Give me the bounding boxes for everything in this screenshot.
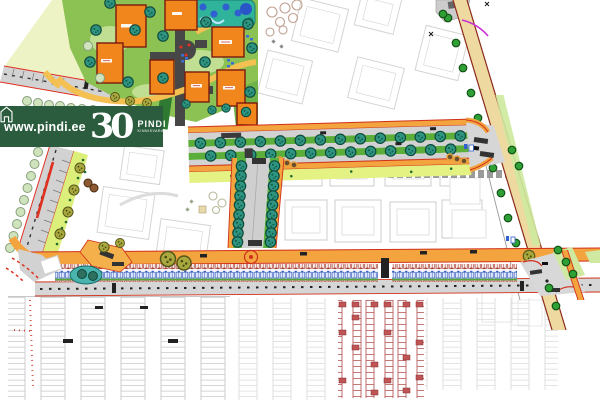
screenshot: www.pindi.ee 30 PINDI KINNISVARA	[0, 0, 600, 400]
parking-areas	[8, 296, 558, 400]
main-boulevard	[188, 119, 471, 183]
pindi-watermark-banner: www.pindi.ee 30 PINDI KINNISVARA	[0, 106, 163, 147]
website-url: www.pindi.ee	[4, 120, 86, 134]
anniversary-number: 30	[90, 111, 131, 141]
brand-name: PINDI	[138, 120, 167, 129]
brand-subtitle: KINNISVARA	[138, 130, 167, 134]
site-plan-map	[0, 0, 600, 400]
vertical-tree-street	[228, 158, 284, 248]
rowhouse-band-east	[392, 264, 517, 282]
